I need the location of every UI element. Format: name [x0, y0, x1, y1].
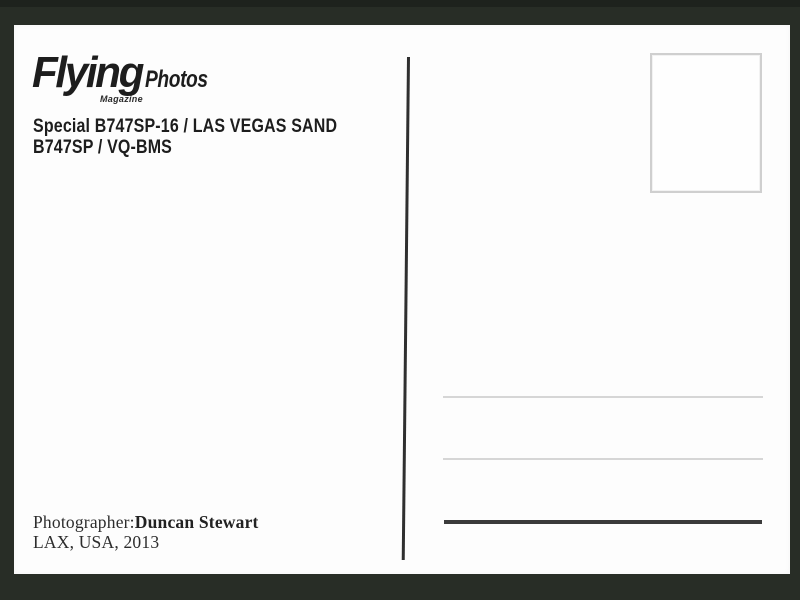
- photo-caption: Special B747SP-16 / LAS VEGAS SAND B747S…: [33, 116, 337, 157]
- divider-line: [402, 57, 410, 560]
- photographer-name: Duncan Stewart: [135, 512, 259, 532]
- location-line: LAX, USA, 2013: [33, 533, 259, 553]
- photographer-credit: Photographer:Duncan Stewart LAX, USA, 20…: [33, 513, 259, 552]
- postcard-back: Flying Photos Magazine Special B747SP-16…: [14, 25, 790, 574]
- address-line-2: [443, 458, 763, 460]
- logo-tagline-text: Magazine: [100, 94, 143, 104]
- stamp-box: [650, 53, 762, 193]
- logo-brand-text: Flying: [32, 51, 142, 95]
- scan-background: Flying Photos Magazine Special B747SP-16…: [0, 0, 800, 600]
- photographer-label: Photographer:: [33, 512, 135, 532]
- address-line-3: [444, 520, 762, 524]
- caption-line-2: B747SP / VQ-BMS: [33, 137, 337, 158]
- photographer-line: Photographer:Duncan Stewart: [33, 513, 259, 533]
- caption-line-1: Special B747SP-16 / LAS VEGAS SAND: [33, 116, 337, 137]
- address-line-1: [443, 396, 763, 398]
- logo-suffix-text: Photos: [145, 68, 208, 92]
- magazine-logo: Flying Photos Magazine: [32, 51, 223, 103]
